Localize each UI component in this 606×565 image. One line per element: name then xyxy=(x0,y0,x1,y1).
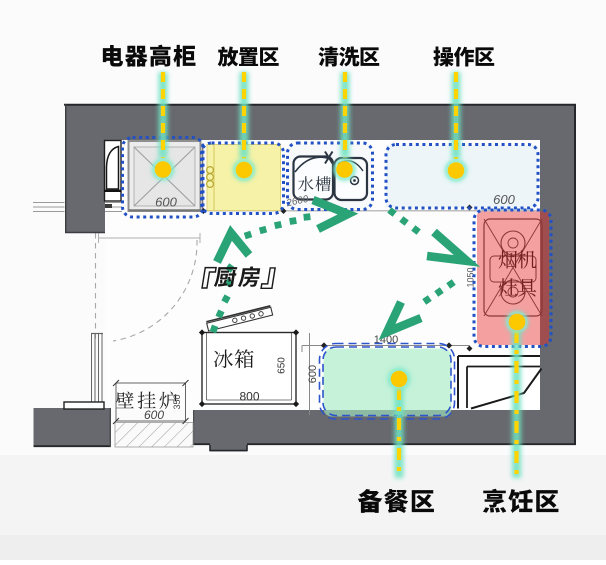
svg-text:600: 600 xyxy=(493,192,515,207)
svg-text:350: 350 xyxy=(172,394,182,409)
svg-text:600: 600 xyxy=(155,195,177,210)
svg-text:600: 600 xyxy=(307,365,319,383)
svg-text:600: 600 xyxy=(144,408,164,422)
svg-text:800: 800 xyxy=(239,390,259,404)
svg-text:650: 650 xyxy=(277,357,288,374)
